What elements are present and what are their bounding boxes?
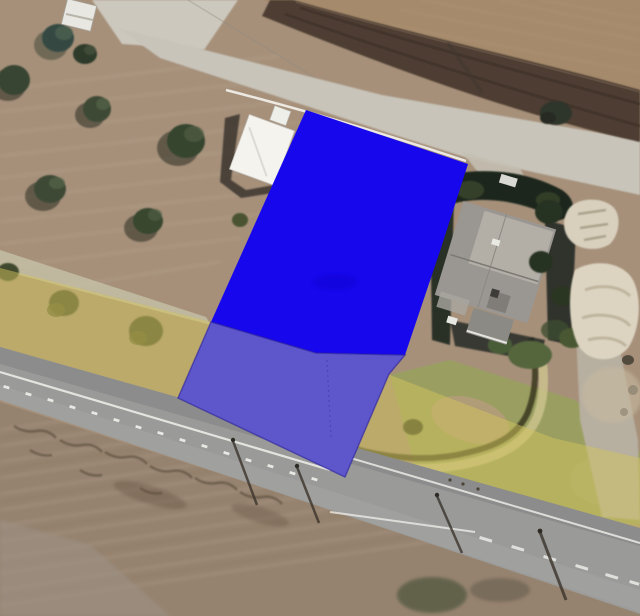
tree xyxy=(73,44,97,64)
tree-shadow-bottom xyxy=(470,578,530,602)
tree-small xyxy=(622,355,634,365)
tree-bottom xyxy=(397,577,467,613)
tree-top-right xyxy=(540,101,572,125)
parcel-smudge xyxy=(313,274,357,290)
pale-ground xyxy=(582,367,640,423)
aerial-map-view xyxy=(0,0,640,616)
bush xyxy=(232,213,248,227)
rock-outcrop xyxy=(570,263,639,359)
lawn-tree xyxy=(508,341,552,369)
rock-outcrop xyxy=(564,200,619,249)
